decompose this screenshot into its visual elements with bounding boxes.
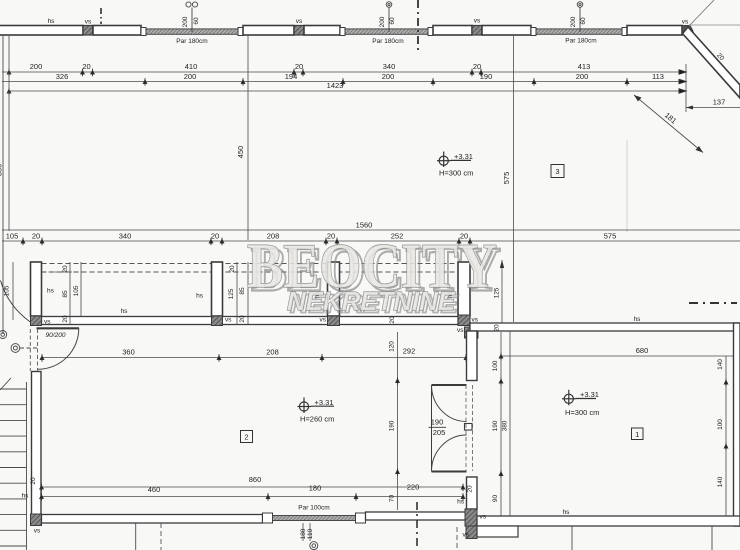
svg-text:208: 208 — [266, 348, 279, 357]
svg-text:380: 380 — [502, 420, 509, 431]
svg-text:137: 137 — [713, 98, 726, 107]
svg-text:vs: vs — [682, 19, 689, 26]
svg-text:125: 125 — [228, 288, 235, 299]
svg-text:575: 575 — [502, 172, 511, 185]
svg-text:460: 460 — [148, 485, 161, 494]
svg-text:205: 205 — [433, 428, 446, 437]
svg-text:360: 360 — [122, 348, 135, 357]
svg-text:1423: 1423 — [327, 81, 344, 90]
svg-text:180: 180 — [309, 484, 322, 493]
svg-text:Par 180cm: Par 180cm — [372, 38, 403, 45]
svg-text:200: 200 — [576, 72, 589, 81]
svg-text:1: 1 — [635, 430, 639, 439]
svg-text:292: 292 — [403, 347, 416, 356]
svg-text:H=300 cm: H=300 cm — [565, 408, 599, 417]
svg-text:hs: hs — [121, 308, 129, 315]
svg-text:hs: hs — [196, 293, 204, 300]
svg-text:+3.31: +3.31 — [315, 398, 334, 407]
svg-text:85: 85 — [62, 290, 69, 298]
svg-text:H=260 cm: H=260 cm — [300, 415, 334, 424]
svg-text:190: 190 — [492, 420, 499, 431]
svg-text:60: 60 — [389, 17, 396, 25]
svg-text:413: 413 — [578, 62, 591, 71]
svg-text:+3.31: +3.31 — [454, 152, 473, 161]
svg-text:200: 200 — [570, 16, 577, 27]
svg-text:hs: hs — [634, 316, 642, 323]
svg-text:20: 20 — [295, 62, 303, 71]
svg-text:Par 100cm: Par 100cm — [298, 505, 329, 512]
svg-text:113: 113 — [652, 72, 664, 81]
svg-text:vs: vs — [34, 528, 41, 535]
svg-text:181: 181 — [663, 111, 678, 126]
svg-text:450: 450 — [236, 146, 245, 159]
svg-text:20: 20 — [32, 232, 40, 241]
svg-text:100: 100 — [717, 419, 724, 430]
svg-text:105: 105 — [73, 285, 80, 296]
svg-text:hs: hs — [457, 499, 465, 506]
svg-text:H=300 cm: H=300 cm — [439, 169, 473, 178]
svg-text:NEKRETNINE: NEKRETNINE — [287, 286, 456, 316]
svg-text:70: 70 — [389, 495, 396, 503]
svg-text:194: 194 — [285, 72, 298, 81]
svg-text:90: 90 — [492, 495, 499, 503]
svg-text:140: 140 — [717, 476, 724, 487]
svg-text:vs: vs — [480, 514, 487, 521]
svg-text:Par 180cm: Par 180cm — [176, 38, 207, 45]
svg-text:vs: vs — [463, 532, 470, 539]
svg-text:200: 200 — [182, 16, 189, 27]
svg-text:vs: vs — [225, 317, 232, 324]
svg-text:220: 220 — [407, 483, 420, 492]
svg-text:1560: 1560 — [356, 221, 373, 230]
svg-text:326: 326 — [56, 72, 69, 81]
svg-text:20: 20 — [467, 485, 474, 493]
svg-text:85: 85 — [239, 287, 246, 295]
svg-text:190: 190 — [389, 420, 396, 431]
svg-text:680: 680 — [636, 346, 649, 355]
svg-text:20: 20 — [211, 232, 219, 241]
svg-text:140: 140 — [717, 359, 724, 370]
svg-text:hs: hs — [563, 509, 571, 516]
svg-text:Par 180cm: Par 180cm — [565, 38, 596, 45]
svg-text:110: 110 — [307, 528, 314, 539]
svg-text:550: 550 — [0, 164, 4, 177]
svg-text:vs: vs — [457, 327, 464, 334]
svg-text:340: 340 — [383, 62, 396, 71]
svg-text:200: 200 — [382, 72, 395, 81]
svg-text:105: 105 — [6, 232, 19, 241]
svg-text:20: 20 — [239, 315, 246, 323]
svg-text:2: 2 — [244, 433, 248, 442]
svg-text:120: 120 — [389, 341, 396, 352]
svg-text:60: 60 — [193, 17, 200, 25]
svg-text:190: 190 — [431, 418, 444, 427]
svg-text:190: 190 — [480, 72, 493, 81]
svg-text:vs: vs — [296, 18, 303, 25]
svg-text:vs: vs — [85, 19, 92, 26]
svg-text:vs: vs — [44, 319, 51, 326]
svg-text:575: 575 — [604, 232, 617, 241]
svg-text:+3.31: +3.31 — [580, 390, 599, 399]
svg-text:860: 860 — [249, 475, 262, 484]
svg-text:100: 100 — [492, 360, 499, 371]
svg-text:hs: hs — [48, 18, 56, 25]
svg-text:200: 200 — [379, 16, 386, 27]
svg-text:20: 20 — [30, 477, 37, 485]
svg-text:20: 20 — [62, 315, 69, 323]
svg-text:340: 340 — [119, 232, 132, 241]
svg-text:20: 20 — [473, 62, 481, 71]
svg-text:20: 20 — [229, 265, 236, 273]
svg-text:20: 20 — [82, 62, 90, 71]
svg-text:200: 200 — [30, 62, 43, 71]
svg-text:3: 3 — [555, 167, 559, 176]
svg-text:60: 60 — [580, 17, 587, 25]
svg-text:vs: vs — [474, 18, 481, 25]
svg-text:180: 180 — [300, 528, 307, 539]
svg-text:20: 20 — [62, 265, 69, 273]
svg-text:410: 410 — [185, 62, 198, 71]
svg-text:hs: hs — [47, 288, 55, 295]
svg-text:200: 200 — [184, 72, 197, 81]
svg-text:90/200: 90/200 — [46, 332, 66, 339]
svg-text:20: 20 — [494, 324, 501, 332]
svg-text:hs: hs — [22, 493, 30, 500]
